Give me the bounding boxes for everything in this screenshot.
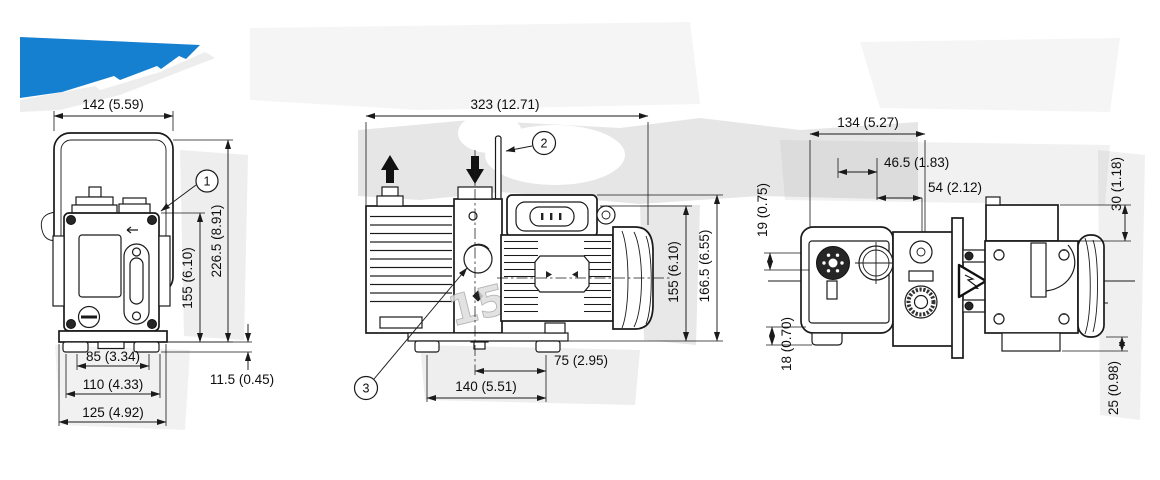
dimensional-drawing: 142 (5.59) 155 (6.10) 226.5 (8.91) 11.5 … [0, 0, 1160, 480]
drawing-page: 142 (5.59) 155 (6.10) 226.5 (8.91) 11.5 … [0, 0, 1160, 480]
foot-left-side [415, 341, 439, 352]
terminal-box [986, 205, 1058, 241]
callout-3-number: 3 [363, 382, 370, 396]
oil-drain-side [474, 342, 485, 349]
dim-handle-width: 142 (5.59) [82, 97, 144, 112]
callout-2-number: 2 [541, 137, 548, 151]
dim-port-offset-outer: 54 (2.12) [928, 180, 982, 195]
electrical-hazard-icon [959, 265, 986, 297]
cable-gland-top [1031, 243, 1046, 297]
dim-port-offset-inner: 46.5 (1.83) [884, 155, 949, 170]
dim-overall-length: 323 (12.71) [470, 97, 539, 112]
dim-side-overall-height: 166.5 (6.55) [697, 230, 712, 303]
front-window [79, 235, 121, 297]
block-foot-top [812, 333, 842, 345]
dim-overall-width: 134 (5.27) [837, 115, 899, 130]
dim-edge-offset-upper: 19 (0.75) [755, 183, 770, 237]
dim-edge-offset-lower: 18 (0.70) [779, 317, 794, 371]
callout-1-number: 1 [204, 175, 211, 189]
intake-port-cap [76, 197, 113, 205]
dim-top-foot-height: 25 (0.98) [1106, 361, 1121, 415]
label-plate [380, 317, 422, 328]
motor-nameplate [535, 256, 589, 292]
base-plate [59, 331, 167, 342]
cable-gland-side [597, 206, 615, 224]
foot-right-side [536, 341, 560, 352]
oil-fill-neck [89, 187, 101, 197]
gas-ballast-knob-small [910, 241, 932, 263]
side-fins-left [53, 236, 64, 306]
motor-foot-top [1002, 333, 1060, 351]
dim-feet-spacing: 140 (5.51) [455, 379, 517, 394]
base-plate-side [408, 333, 568, 341]
dim-base-width: 125 (4.92) [82, 405, 144, 420]
dim-body-height: 155 (6.10) [180, 247, 195, 309]
fan-cover-top [1078, 235, 1104, 337]
dim-side-body-height: 155 (6.10) [666, 241, 681, 303]
dim-foot-height: 11.5 (0.45) [210, 372, 274, 387]
dim-overall-height: 226.5 (8.91) [209, 205, 224, 278]
dim-feet-outer: 110 (4.33) [83, 377, 144, 392]
foot-left [63, 342, 88, 352]
side-fins-right [159, 236, 170, 306]
exhaust-port-side [377, 196, 403, 206]
dim-terminal-box-height: 30 (1.18) [1109, 157, 1124, 211]
dim-feet-inner: 85 (3.34) [86, 349, 140, 364]
dim-motor-foot-offset: 75 (2.95) [554, 353, 608, 368]
